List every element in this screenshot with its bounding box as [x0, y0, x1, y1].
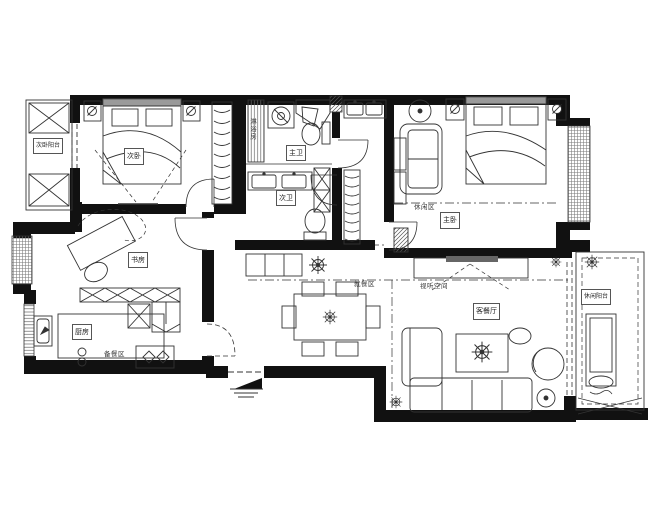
lounge-bench	[586, 314, 616, 386]
label-left-balcony: 次卧阳台	[33, 138, 63, 154]
pouf	[509, 328, 531, 344]
tall-cabinet-row	[80, 288, 180, 302]
bed-headboard	[466, 97, 546, 104]
label-master-bath: 主卫	[286, 145, 306, 161]
study	[67, 209, 207, 285]
chair	[336, 342, 358, 356]
plant-icon	[472, 342, 493, 363]
tv-icon	[446, 256, 498, 262]
label-av-zone: 视听空间	[420, 283, 448, 290]
kitchen-window	[24, 304, 34, 356]
label-leisure-balcony: 休闲阳台	[581, 289, 611, 305]
floor-plan-drawing	[0, 0, 650, 520]
desk-chair	[81, 258, 111, 285]
decor-curve	[78, 209, 146, 240]
sink-basin	[282, 175, 306, 188]
chair	[302, 342, 324, 356]
label-kitchen: 厨房	[72, 324, 92, 340]
duct-shaft	[330, 96, 342, 112]
chair	[366, 306, 380, 328]
label-second-bath: 次卫	[276, 190, 296, 206]
label-master-bedroom: 主卧	[440, 212, 460, 229]
study-bay-window	[12, 236, 32, 284]
label-dining-area: 就餐区	[354, 281, 375, 288]
pillow-icon	[474, 107, 502, 125]
master-bath	[246, 100, 386, 168]
blanket-lines	[466, 131, 546, 166]
hanger-arcs	[345, 176, 359, 241]
door-arc	[175, 218, 207, 250]
entry	[228, 372, 264, 397]
plant-icon	[585, 255, 599, 269]
sideboard	[246, 254, 302, 276]
cabinet	[394, 228, 408, 252]
door-arc	[338, 140, 368, 168]
pillow-icon	[112, 109, 138, 126]
plant-icon	[309, 256, 327, 274]
entry-arrow-icon	[234, 378, 262, 389]
plant-icon	[323, 310, 337, 324]
secondary-bedroom	[84, 99, 232, 207]
sofa-icon	[410, 378, 532, 412]
leisure-balcony	[567, 252, 644, 414]
lamp-icon	[553, 105, 562, 114]
door-arc	[186, 179, 214, 207]
label-secondary-bedroom: 次卧	[124, 148, 144, 165]
master-bedroom	[394, 97, 566, 252]
label-leisure-zone: 休闲区	[414, 204, 435, 211]
plant-icon	[390, 396, 403, 409]
label-shower-room: 淋浴房	[249, 106, 256, 152]
bed-headboard	[103, 99, 181, 106]
master-bay-window	[568, 126, 590, 222]
label-living-dining: 客餐厅	[473, 303, 500, 320]
label-study: 书房	[128, 252, 148, 268]
toilet-tank	[322, 122, 330, 144]
kitchen-door-arc	[207, 324, 235, 356]
sink-basin	[252, 175, 276, 188]
plant-icon	[551, 257, 562, 268]
toilet-icon	[305, 209, 325, 233]
sofa-chaise	[402, 328, 442, 386]
hall-wardrobe	[344, 170, 360, 244]
pillow-icon	[146, 109, 172, 126]
balcony-sliding-door	[567, 262, 572, 396]
wardrobe	[212, 102, 232, 204]
label-prep-area: 备餐区	[104, 351, 125, 358]
hanger-arcs	[214, 110, 230, 200]
left-balcony	[26, 100, 77, 210]
dining-area	[246, 254, 568, 408]
lamp-icon	[88, 107, 97, 116]
lamp-icon	[451, 105, 460, 114]
toilet-icon	[302, 123, 320, 145]
living-room	[390, 256, 564, 412]
lamp-icon	[187, 107, 196, 116]
balcony-sliding-door	[72, 124, 77, 168]
pillow-icon	[510, 107, 538, 125]
floor-plan: 次卧阳台 次卧 淋浴房 主卫 次卫 休闲区 主卧 书房 厨房 备餐区 就餐区 视…	[0, 0, 650, 520]
faucet	[41, 327, 49, 334]
